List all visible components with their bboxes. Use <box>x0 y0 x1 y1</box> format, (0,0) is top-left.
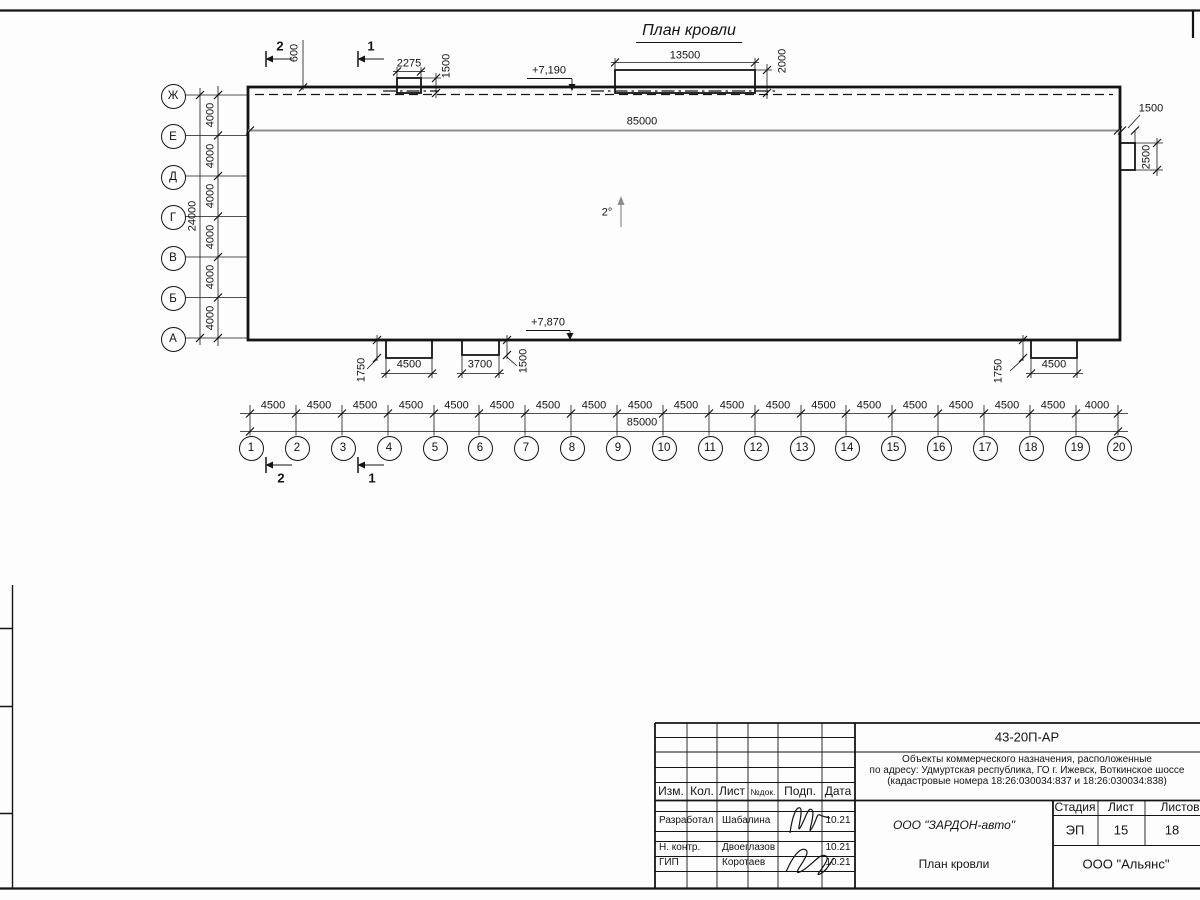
dim-canopy3-width: 4500 <box>1042 360 1066 371</box>
column-axis-bubble-17: 17 <box>973 436 998 461</box>
tb-role-ncontr: Н. контр. <box>659 843 700 853</box>
dim-bottom-total: 85000 <box>627 418 658 429</box>
dim-canopy2-width: 3700 <box>468 360 492 371</box>
dim-skylight-small-depth: 1500 <box>442 54 453 78</box>
tb-name-gip: Коротаев <box>722 858 765 868</box>
tb-name-developer: Шабалина <box>722 816 770 826</box>
axis-grid-lines <box>184 95 1118 436</box>
column-axis-bubble-1: 1 <box>239 436 264 461</box>
tb-date-gip: 10.21 <box>825 858 850 868</box>
dimension-lines <box>200 40 1163 432</box>
section-1-top-label: 1 <box>367 40 374 53</box>
elevation-roof-high: +7,190 <box>532 66 566 77</box>
tb-stage-label: Стадия <box>1055 801 1096 813</box>
section-2-top-label: 2 <box>276 40 283 53</box>
column-axis-bubble-11: 11 <box>698 436 723 461</box>
tb-name-ncontr: Двоеглазов <box>722 843 775 853</box>
project-description-line2: по адресу: Удмуртская республика, ГО г. … <box>870 766 1185 776</box>
dim-bottom-segment-5: 4500 <box>444 401 468 412</box>
column-axis-bubble-20: 20 <box>1107 436 1132 461</box>
dim-bottom-segment-11: 4500 <box>720 401 744 412</box>
column-axis-bubble-12: 12 <box>744 436 769 461</box>
dim-bottom-segment-7: 4500 <box>536 401 560 412</box>
column-axis-bubble-19: 19 <box>1065 436 1090 461</box>
row-axis-bubble-Г: Г <box>161 205 186 230</box>
building-outline <box>248 87 1120 340</box>
drawing-title: План кровли <box>636 23 742 43</box>
dim-skylight-large-depth: 2000 <box>778 49 789 73</box>
tb-organization: ООО "Альянс" <box>1083 858 1170 871</box>
dim-left-segment-3: 4000 <box>206 184 217 208</box>
column-axis-bubble-18: 18 <box>1019 436 1044 461</box>
column-axis-bubble-3: 3 <box>331 436 356 461</box>
dim-bottom-segment-12: 4500 <box>766 401 790 412</box>
column-axis-bubble-4: 4 <box>377 436 402 461</box>
dim-bottom-segment-1: 4500 <box>261 401 285 412</box>
column-axis-bubble-5: 5 <box>423 436 448 461</box>
dim-canopy1-depth: 1750 <box>357 358 368 382</box>
dim-bottom-segment-10: 4500 <box>674 401 698 412</box>
drawing-sheet: План кровли 85000 85000 2275 1500 600 13… <box>0 0 1200 900</box>
column-axis-bubble-16: 16 <box>927 436 952 461</box>
elevation-roof-low: +7,870 <box>531 318 565 329</box>
section-2-bottom-label: 2 <box>277 472 284 485</box>
dim-left-segment-1: 4000 <box>206 103 217 127</box>
dim-bottom-segment-19: 4000 <box>1085 401 1109 412</box>
dim-bottom-segment-17: 4500 <box>995 401 1019 412</box>
dim-canopy3-depth: 1750 <box>994 359 1005 383</box>
column-axis-bubble-9: 9 <box>606 436 631 461</box>
elevation-marks <box>526 79 576 341</box>
project-description-line3: (кадастровые номера 18:26:030034:837 и 1… <box>887 777 1167 787</box>
dim-bottom-segment-8: 4500 <box>582 401 606 412</box>
dim-left-segment-4: 4000 <box>206 225 217 249</box>
tb-date-developer: 10.21 <box>825 816 850 826</box>
dim-left-segment-2: 4000 <box>206 144 217 168</box>
tb-header-izm: Изм. <box>658 785 684 797</box>
dim-skylight-large-width: 13500 <box>670 51 701 62</box>
dim-bottom-segment-15: 4500 <box>903 401 927 412</box>
tb-header-list: Лист <box>719 785 745 797</box>
dim-bottom-segment-4: 4500 <box>399 401 423 412</box>
dim-top-offset: 600 <box>290 44 301 62</box>
row-axis-bubble-А: А <box>161 327 186 352</box>
dim-left-total: 24000 <box>188 201 199 232</box>
slope-label: 2° <box>602 208 613 219</box>
project-description-line1: Объекты коммерческого назначения, распол… <box>902 755 1152 765</box>
tb-sheet-title: План кровли <box>919 858 990 870</box>
dim-skylight-small-width: 2275 <box>397 59 421 70</box>
tb-sheet-label: Лист <box>1108 801 1134 813</box>
tb-date-ncontr: 10.21 <box>825 843 850 853</box>
tb-sheets-label: Листов <box>1161 801 1200 813</box>
tb-role-gip: ГИП <box>659 858 679 868</box>
dim-bottom-segment-18: 4500 <box>1041 401 1065 412</box>
tb-header-podp: Подп. <box>784 785 816 797</box>
tb-sheet-value: 15 <box>1114 824 1128 837</box>
dim-canopy-right-width: 1500 <box>1139 104 1163 115</box>
tb-header-data: Дата <box>825 785 852 797</box>
dim-bottom-segment-9: 4500 <box>628 401 652 412</box>
column-axis-bubble-2: 2 <box>285 436 310 461</box>
column-axis-bubble-13: 13 <box>790 436 815 461</box>
row-axis-bubble-Д: Д <box>161 165 186 190</box>
tb-header-kol: Кол. <box>690 785 714 797</box>
row-axis-bubble-Е: Е <box>161 124 186 149</box>
row-axis-bubble-В: В <box>161 246 186 271</box>
dim-left-segment-5: 4000 <box>206 265 217 289</box>
slope-arrow <box>618 196 625 227</box>
column-axis-bubble-15: 15 <box>881 436 906 461</box>
dim-bottom-segment-16: 4500 <box>949 401 973 412</box>
dim-canopy-right-height: 2500 <box>1142 145 1153 169</box>
dim-bottom-segment-13: 4500 <box>811 401 835 412</box>
row-axis-bubble-Б: Б <box>161 286 186 311</box>
dim-bottom-segment-6: 4500 <box>490 401 514 412</box>
column-axis-bubble-7: 7 <box>514 436 539 461</box>
row-axis-bubble-Ж: Ж <box>161 84 186 109</box>
dim-bottom-segment-3: 4500 <box>353 401 377 412</box>
column-axis-bubble-14: 14 <box>835 436 860 461</box>
dim-canopy2-depth: 1500 <box>519 349 530 373</box>
section-1-bottom-label: 1 <box>368 472 375 485</box>
dim-canopy1-width: 4500 <box>397 360 421 371</box>
tb-header-doc: №док. <box>751 788 776 797</box>
dim-left-segment-6: 4000 <box>206 306 217 330</box>
tb-stage-value: ЭП <box>1066 824 1085 837</box>
dim-bottom-segment-2: 4500 <box>307 401 331 412</box>
column-axis-bubble-6: 6 <box>468 436 493 461</box>
axis-grid-ticks <box>214 91 1122 418</box>
column-axis-bubble-8: 8 <box>560 436 585 461</box>
roof-structures <box>386 70 1135 358</box>
tb-role-developer: Разработал <box>659 816 713 826</box>
tb-company: ООО "ЗАРДОН-авто" <box>893 819 1015 831</box>
dim-roof-length: 85000 <box>627 117 658 128</box>
column-axis-bubble-10: 10 <box>652 436 677 461</box>
dimension-ticks <box>196 59 1161 436</box>
dim-bottom-segment-14: 4500 <box>857 401 881 412</box>
tb-sheets-value: 18 <box>1165 824 1179 837</box>
doc-number: 43-20П-АР <box>995 731 1059 744</box>
